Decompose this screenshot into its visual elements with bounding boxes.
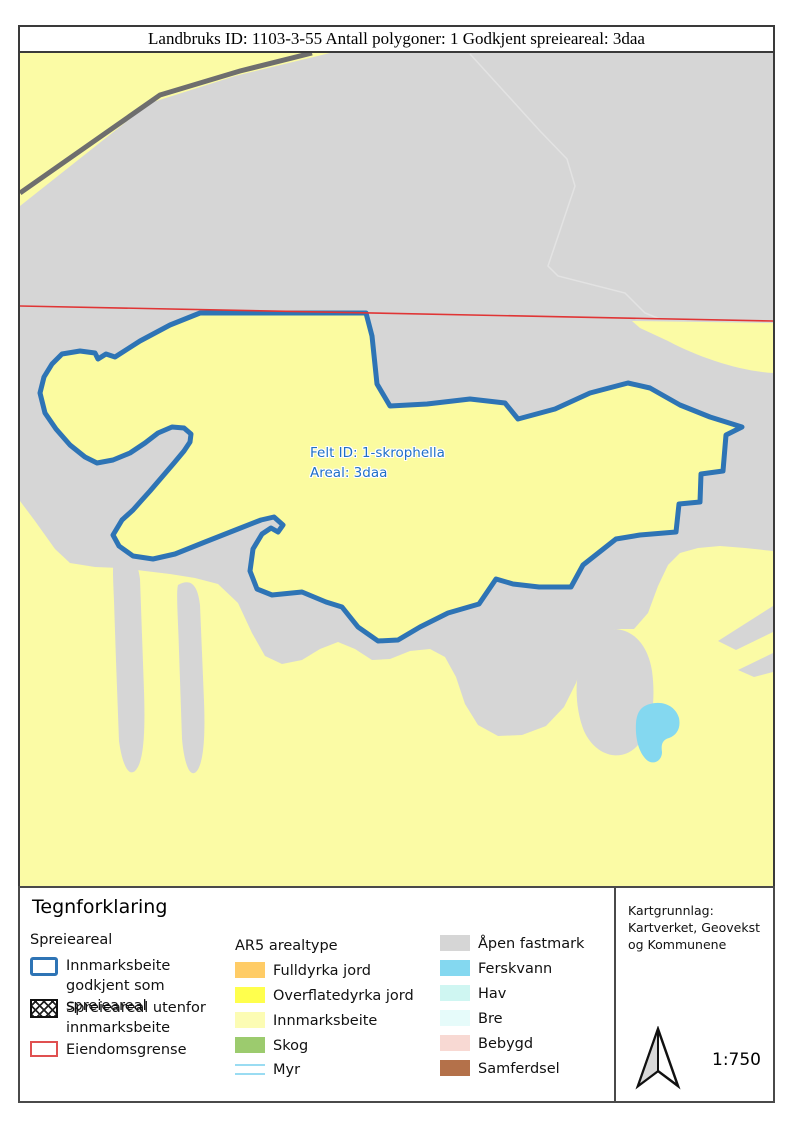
legend-panel: Tegnforklaring Spreieareal Innmarksbeite… (18, 886, 616, 1103)
feature-label-area: Areal: 3daa (310, 463, 445, 483)
bebygd-swatch (440, 1035, 470, 1051)
basemap-credit: Kartgrunnlag: Kartverket, Geovekst og Ko… (628, 902, 760, 953)
map-report-page: { "title_bar": { "text": "Landbruks ID: … (0, 0, 793, 1122)
basemap-credit-line: Kartverket, Geovekst (628, 919, 760, 936)
legend-item-eiendomsgrense: Eiendomsgrense (30, 1040, 187, 1060)
legend-item-hav: Hav (440, 984, 506, 1004)
ar5-heading: AR5 arealtype (235, 938, 338, 954)
basemap-credit-line: Kartgrunnlag: (628, 902, 760, 919)
legend-item-label: Innmarksbeite (273, 1011, 377, 1031)
innmarksbeite-swatch (235, 1012, 265, 1028)
legend-item-bebygd: Bebygd (440, 1034, 533, 1054)
legend-item-skog: Skog (235, 1036, 308, 1056)
north-arrow-icon (634, 1026, 682, 1094)
fulldyrka-swatch (235, 962, 265, 978)
legend-item-overflatedyrka: Overflatedyrka jord (235, 986, 414, 1006)
scale-label: 1:750 (712, 1050, 761, 1070)
apen-fastmark-swatch (440, 935, 470, 951)
legend-item-label: Bre (478, 1009, 503, 1029)
legend-item-label: Fulldyrka jord (273, 961, 371, 981)
basemap-credit-line: og Kommunene (628, 936, 760, 953)
info-panel: Kartgrunnlag: Kartverket, Geovekst og Ko… (614, 886, 775, 1103)
feature-label-id: Felt ID: 1-skrophella (310, 443, 445, 463)
crosshatch-swatch (30, 999, 58, 1018)
legend-item-samferdsel: Samferdsel (440, 1059, 560, 1079)
legend-item-ferskvann: Ferskvann (440, 959, 552, 979)
legend-item-myr: Myr (235, 1060, 300, 1080)
legend-item-label: Ferskvann (478, 959, 552, 979)
legend-item-bre: Bre (440, 1009, 503, 1029)
legend-item-label: Skog (273, 1036, 308, 1056)
legend-item-fulldyrka: Fulldyrka jord (235, 961, 371, 981)
spreieareal-heading: Spreieareal (30, 932, 112, 948)
legend-item-label: Overflatedyrka jord (273, 986, 414, 1006)
legend-item-innmarksbeite: Innmarksbeite (235, 1011, 377, 1031)
legend-item-label: Spreieareal utenfor innmarksbeite (66, 998, 236, 1038)
legend-item-label: Eiendomsgrense (66, 1040, 187, 1060)
legend-item-apen-fastmark: Åpen fastmark (440, 934, 584, 954)
hav-swatch (440, 985, 470, 1001)
ferskvann-swatch (440, 960, 470, 976)
feature-label: Felt ID: 1-skrophella Areal: 3daa (310, 443, 445, 483)
myr-swatch (235, 1064, 265, 1075)
bre-swatch (440, 1010, 470, 1026)
legend-item-spreieareal-utenfor: Spreieareal utenfor innmarksbeite (30, 998, 236, 1038)
legend-item-label: Hav (478, 984, 506, 1004)
red-outline-swatch (30, 1041, 58, 1057)
map-title-bar: Landbruks ID: 1103-3-55 Antall polygoner… (18, 25, 775, 53)
map-canvas: Felt ID: 1-skrophella Areal: 3daa (18, 51, 775, 888)
legend-item-label: Myr (273, 1060, 300, 1080)
legend-item-label: Bebygd (478, 1034, 533, 1054)
legend-item-label: Samferdsel (478, 1059, 560, 1079)
blue-outline-swatch (30, 957, 58, 976)
map-title-text: Landbruks ID: 1103-3-55 Antall polygoner… (148, 29, 645, 49)
samferdsel-swatch (440, 1060, 470, 1076)
legend-item-label: Åpen fastmark (478, 934, 584, 954)
overflatedyrka-swatch (235, 987, 265, 1003)
legend-title: Tegnforklaring (32, 896, 167, 918)
skog-swatch (235, 1037, 265, 1053)
